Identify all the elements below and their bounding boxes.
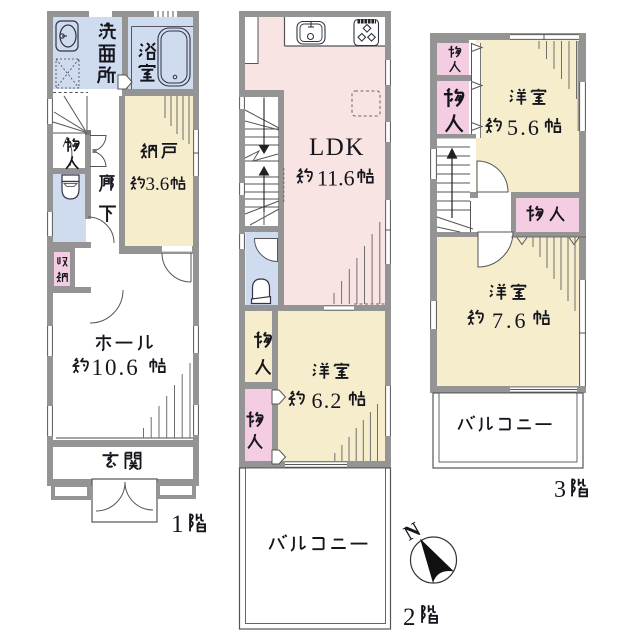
- svg-text:3.6: 3.6: [146, 174, 170, 195]
- svg-text:7.6: 7.6: [492, 308, 529, 333]
- svg-text:6.2: 6.2: [312, 388, 343, 413]
- svg-text:11.6: 11.6: [317, 166, 355, 191]
- svg-text:2: 2: [403, 604, 416, 631]
- svg-text:5.6: 5.6: [507, 115, 541, 140]
- svg-text:1: 1: [171, 511, 184, 538]
- svg-text:10.6: 10.6: [92, 355, 140, 380]
- svg-text:3: 3: [554, 477, 566, 503]
- svg-text:LDK: LDK: [309, 134, 365, 161]
